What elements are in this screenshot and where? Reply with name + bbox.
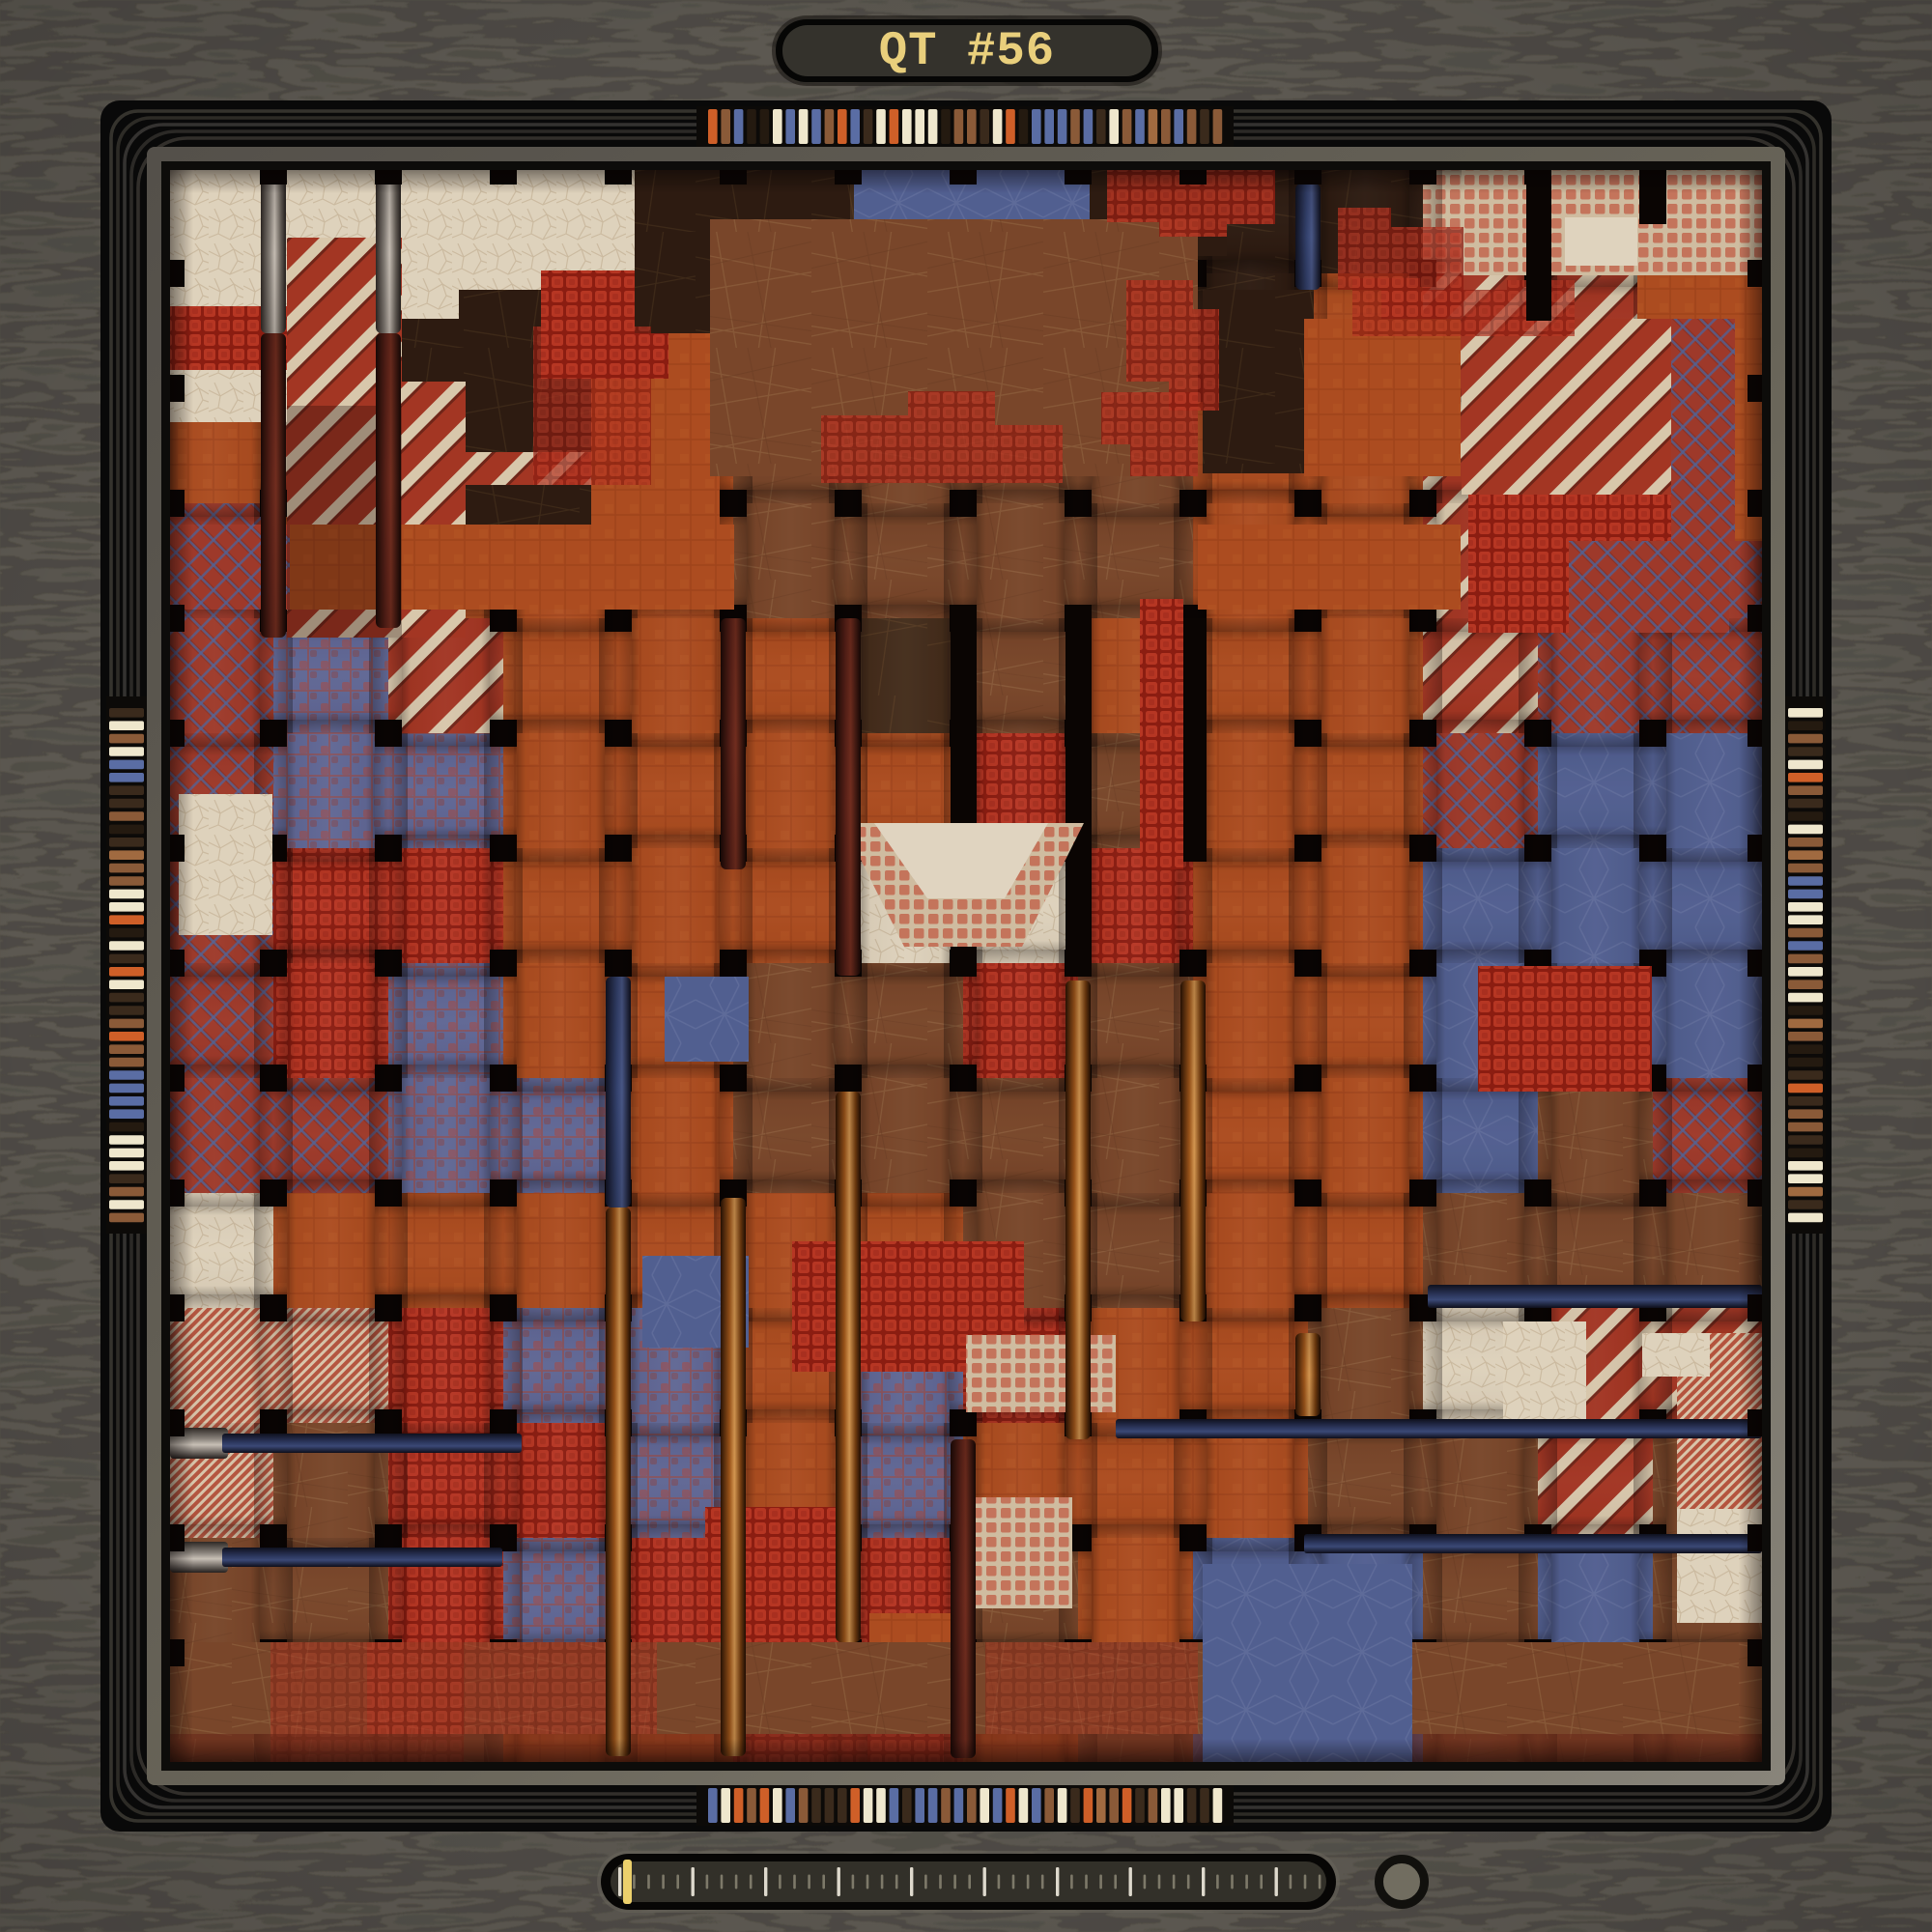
svg-text:QT #56: QT #56: [879, 24, 1055, 78]
